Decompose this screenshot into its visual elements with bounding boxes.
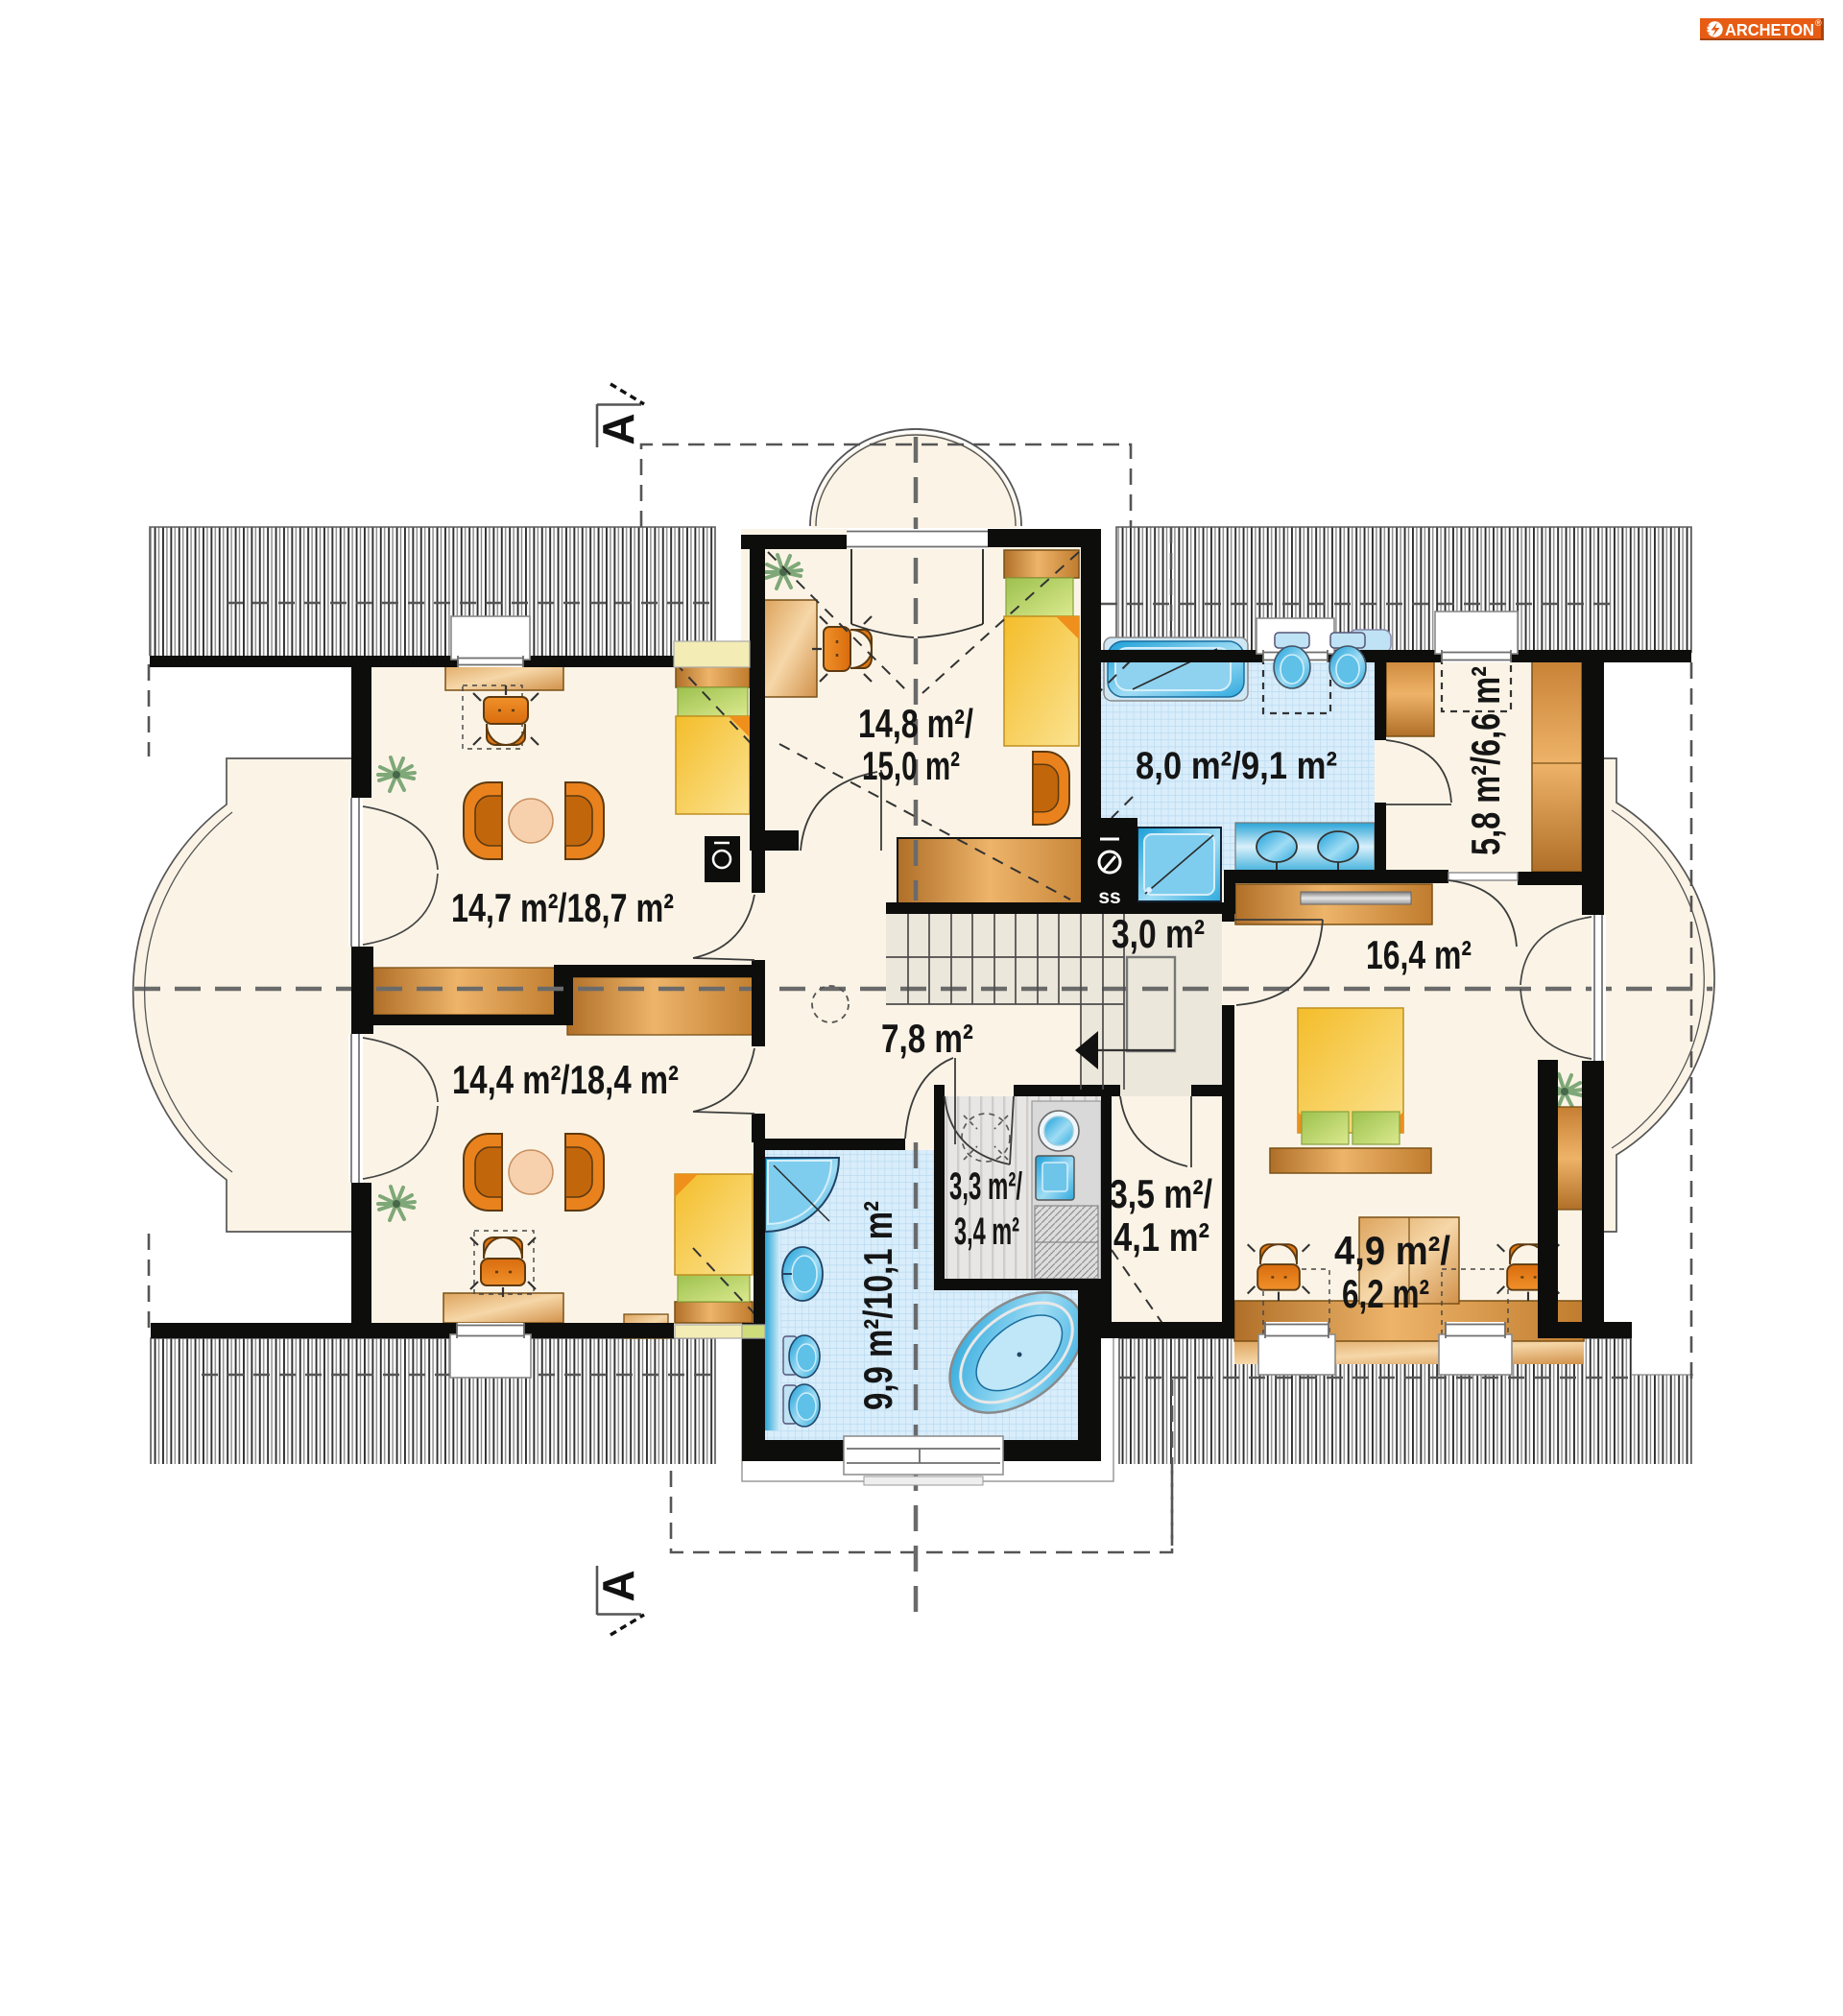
svg-text:A: A [593,1570,643,1601]
svg-text:14,7 m²/18,7 m²: 14,7 m²/18,7 m² [451,885,674,930]
svg-text:16,4 m²: 16,4 m² [1366,932,1472,977]
svg-text:5,8 m²/6,6 m²: 5,8 m²/6,6 m² [1463,666,1508,855]
svg-text:9,9 m²/10,1 m²: 9,9 m²/10,1 m² [855,1201,900,1410]
svg-text:15,0 m²: 15,0 m² [862,743,960,788]
svg-text:3,4 m²: 3,4 m² [954,1211,1019,1253]
svg-text:3,0 m²: 3,0 m² [1112,911,1205,956]
svg-text:4,9 m²/: 4,9 m²/ [1334,1228,1450,1273]
svg-text:A: A [593,413,643,444]
svg-text:3,5 m²/: 3,5 m²/ [1110,1171,1212,1216]
svg-text:®: ® [1815,18,1822,28]
svg-text:14,8 m²/: 14,8 m²/ [858,701,973,746]
svg-text:6,2 m²: 6,2 m² [1342,1271,1429,1316]
svg-text:4,1 m²: 4,1 m² [1113,1214,1209,1260]
svg-text:ss: ss [1098,886,1120,908]
svg-text:7,8 m²: 7,8 m² [881,1016,973,1061]
svg-text:ARCHETON: ARCHETON [1725,20,1814,39]
svg-text:14,4 m²/18,4 m²: 14,4 m²/18,4 m² [452,1057,679,1102]
svg-text:8,0 m²/9,1 m²: 8,0 m²/9,1 m² [1136,745,1337,787]
svg-text:3,3 m²/: 3,3 m²/ [949,1165,1022,1208]
